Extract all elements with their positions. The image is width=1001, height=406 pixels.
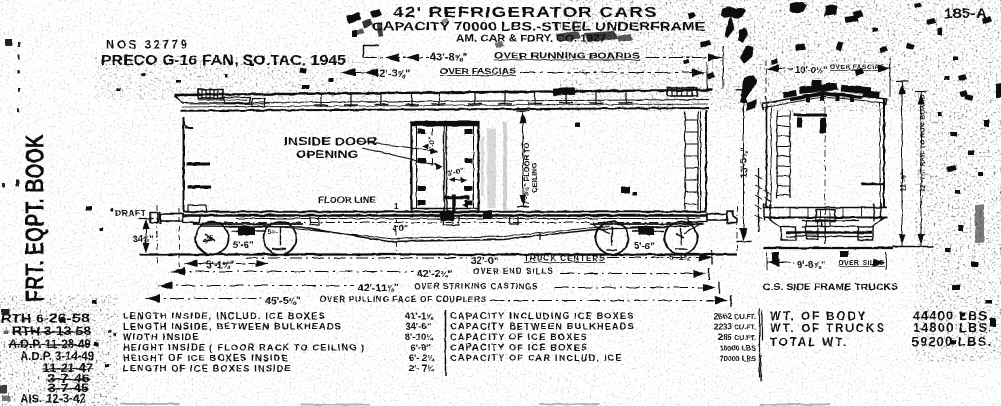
svg-text:DRAFT: DRAFT	[115, 208, 147, 218]
svg-text:CAPACITY OF ICE BOXES: CAPACITY OF ICE BOXES	[450, 332, 588, 342]
svg-text:42' REFRIGERATOR CARS: 42' REFRIGERATOR CARS	[393, 4, 658, 21]
svg-text:AIS. 12-3-42: AIS. 12-3-42	[20, 394, 86, 406]
svg-text:NOS 32779: NOS 32779	[106, 40, 190, 52]
svg-text:11'-9": 11'-9"	[899, 172, 908, 192]
svg-text:LENGTH OF ICE BOXES INSIDE: LENGTH OF ICE BOXES INSIDE	[123, 364, 292, 374]
svg-text:42'-2¾": 42'-2¾"	[417, 268, 453, 280]
svg-text:OVER RUNNING BOARDS: OVER RUNNING BOARDS	[494, 52, 641, 61]
svg-text:TRUCK CENTERS: TRUCK CENTERS	[524, 254, 605, 263]
svg-text:2662 CU.FT.: 2662 CU.FT.	[714, 312, 756, 321]
svg-text:WT. OF TRUCKS: WT. OF TRUCKS	[770, 323, 886, 335]
svg-text:2233 CU.FT.: 2233 CU.FT.	[714, 323, 756, 332]
svg-text:12'-7⅞" RAIL TO RUN. BOARD: 12'-7⅞" RAIL TO RUN. BOARD	[920, 94, 927, 192]
svg-text:43'-8⅝": 43'-8⅝"	[430, 52, 467, 64]
svg-text:FLOOR LINE: FLOOR LINE	[318, 195, 376, 206]
svg-text:42'-3⅝": 42'-3⅝"	[373, 68, 410, 80]
svg-text:A.D.P. 11-28-49: A.D.P. 11-28-49	[9, 339, 91, 351]
svg-text:285 CU.FT.: 285 CU.FT.	[718, 333, 756, 342]
svg-text:WT. OF BODY: WT. OF BODY	[770, 311, 867, 323]
svg-text:CAPACITY OF CAR INCLUD. ICE: CAPACITY OF CAR INCLUD. ICE	[450, 353, 623, 363]
svg-text:4'0": 4'0"	[392, 223, 408, 233]
svg-text:OVER FASCIAS: OVER FASCIAS	[440, 67, 517, 76]
svg-text:45'-5⅜": 45'-5⅜"	[265, 295, 301, 307]
svg-text:5=-: 5=-	[268, 229, 278, 236]
svg-text:185-A: 185-A	[944, 6, 987, 21]
svg-text:5'-1⅛": 5'-1⅛"	[206, 260, 235, 271]
svg-text:OVER STRIKING CASTINGS: OVER STRIKING CASTINGS	[414, 282, 538, 291]
svg-text:FRT. EQPT. BOOK: FRT. EQPT. BOOK	[19, 134, 49, 302]
svg-text:42'-11⅜": 42'-11⅜"	[358, 282, 399, 294]
svg-text:10000 LBS: 10000 LBS	[720, 344, 757, 353]
svg-text:OVER SILLS: OVER SILLS	[838, 260, 885, 267]
svg-text:13'-5⅜": 13'-5⅜"	[739, 147, 749, 178]
svg-text:8'-10¼: 8'-10¼	[405, 332, 434, 343]
svg-text:WIDTH INSIDE: WIDTH INSIDE	[123, 332, 200, 342]
svg-text:PRECO G-16 FAN, SO.TAC. 1945: PRECO G-16 FAN, SO.TAC. 1945	[101, 53, 346, 69]
svg-text:41'-1⅝: 41'-1⅝	[405, 311, 434, 322]
svg-text:14800 LBS.: 14800 LBS.	[913, 320, 992, 335]
svg-text:CAPACITY OF ICE BOXES: CAPACITY OF ICE BOXES	[450, 343, 588, 353]
svg-text:LENGTH INSIDE, BETWEEN BULKHEA: LENGTH INSIDE, BETWEEN BULKHEADS	[123, 322, 342, 332]
svg-text:TOTAL WT.: TOTAL WT.	[770, 337, 848, 349]
svg-text:2'- 7¼: 2'- 7¼	[409, 364, 436, 375]
svg-text:OVER END SILLS: OVER END SILLS	[473, 267, 554, 276]
svg-text:HEIGHT INSIDE ( FLOOR RACK TO: HEIGHT INSIDE ( FLOOR RACK TO CEILING )	[123, 343, 366, 353]
svg-text:A.D.P. 3-14-49: A.D.P. 3-14-49	[20, 351, 94, 363]
svg-text:34'-6": 34'-6"	[405, 322, 431, 333]
svg-text:10'-0½": 10'-0½"	[795, 65, 827, 76]
svg-text:RTH 3-13-58: RTH 3-13-58	[12, 326, 92, 338]
svg-text:OVER PULLING FACE OF COUPLERS: OVER PULLING FACE OF COUPLERS	[320, 295, 487, 304]
svg-text:5'-6": 5'-6"	[634, 241, 655, 252]
svg-text:AM. CAR & FDRY. CO. 1927: AM. CAR & FDRY. CO. 1927	[456, 33, 606, 45]
svg-text:1: 1	[394, 202, 399, 211]
svg-text:70000 LBS: 70000 LBS	[720, 354, 757, 363]
svg-text:9'-8⅞": 9'-8⅞"	[797, 260, 826, 271]
svg-text:CAPACITY BETWEEN BULKHEADS: CAPACITY BETWEEN BULKHEADS	[450, 322, 635, 332]
svg-text:32'-0": 32'-0"	[471, 256, 498, 267]
svg-text:6'-8": 6'-8"	[411, 343, 432, 354]
svg-text:OPENING: OPENING	[296, 149, 358, 161]
svg-text:C.S. SIDE FRAME TRUCKS: C.S. SIDE FRAME TRUCKS	[763, 282, 898, 293]
svg-text:RTH 6-26-58: RTH 6-26-58	[1, 312, 90, 326]
svg-text:5'-6": 5'-6"	[233, 240, 254, 251]
svg-text:LENGTH INSIDE, INCLUD. ICE BOX: LENGTH INSIDE, INCLUD. ICE BOXES	[123, 311, 326, 321]
svg-text:CEILING: CEILING	[530, 162, 539, 193]
svg-text:CAPACITY INCLUDING ICE BOXES: CAPACITY INCLUDING ICE BOXES	[450, 311, 635, 321]
svg-text:34½": 34½"	[133, 234, 154, 244]
svg-text:HEIGHT OF ICE BOXES INSIDE: HEIGHT OF ICE BOXES INSIDE	[123, 353, 289, 363]
svg-text:6'- 2¼: 6'- 2¼	[409, 353, 436, 364]
